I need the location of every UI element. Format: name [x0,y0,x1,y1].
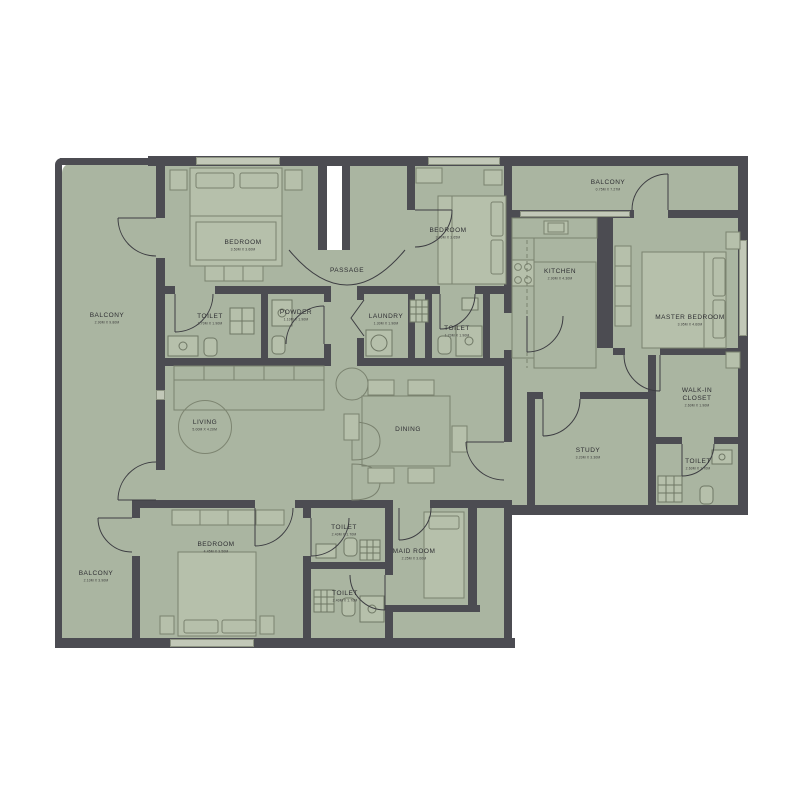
room-dimension: 2.90M X 4.30M [548,277,573,280]
room-label-toilet-2: TOILET1.70M X 1.90M [431,325,482,341]
room-label-living: LIVING5.00M X 4.20M [178,400,232,454]
room-name: TOILET [685,458,711,466]
room-dimension: 1.70M X 1.90M [445,334,470,337]
room-name: TOILET [444,325,470,333]
room-label-maid-room: MAID ROOM2.25M X 3.00M [388,548,439,564]
room-name: TOILET [332,590,358,598]
room-name: POWDER [280,309,312,317]
room-dimension: 1.70M X 1.90M [198,322,223,325]
room-dimension: 2.60M X 1.70M [686,467,711,470]
room-label-toilet-master: TOILET2.60M X 1.70M [672,458,723,474]
room-dimension: 2.10M X 3.90M [84,579,109,582]
room-label-balcony-left: BALCONY2.90M X 9.80M [81,312,132,328]
room-name: BALCONY [591,179,626,187]
room-label-balcony-top: BALCONY0.75M X 7.27M [582,179,633,195]
room-name: MAID ROOM [393,548,436,556]
room-name: BEDROOM [197,541,234,549]
room-dimension: 3.20M X 3.30M [576,456,601,459]
room-label-walk-in-closet: WALK-IN CLOSET2.60M X 1.90M [671,387,722,411]
room-name: BEDROOM [224,239,261,247]
room-dimension: 3.95M X 4.60M [678,323,703,326]
room-name: PASSAGE [330,267,364,275]
room-dimension: 5.00M X 4.20M [193,428,218,431]
room-label-balcony-bottom: BALCONY2.10M X 3.90M [70,570,121,586]
room-dimension: 4.45M X 3.50M [204,550,229,553]
room-name: BALCONY [90,312,125,320]
room-name: LIVING [193,419,217,427]
room-dimension: 2.60M X 1.90M [685,404,710,407]
room-label-toilet-3: TOILET2.40M X 1.70M [318,524,369,540]
room-label-bedroom-3: BEDROOM4.45M X 3.50M [190,541,241,557]
room-label-dining: DINING [395,426,421,434]
room-label-kitchen: KITCHEN2.90M X 4.30M [534,268,585,284]
room-dimension: 2.90M X 9.80M [95,321,120,324]
room-label-bedroom-1: BEDROOM3.50M X 3.60M [217,239,268,255]
room-name: BEDROOM [429,227,466,235]
room-dimension: 1.10M X 1.90M [284,318,309,321]
room-name: KITCHEN [544,268,576,276]
room-dimension: 2.25M X 3.00M [402,557,427,560]
room-label-toilet-1: TOILET1.70M X 1.90M [184,313,235,329]
room-label-master-bedroom: MASTER BEDROOM3.95M X 4.60M [655,314,724,330]
room-dimension: 1.30M X 1.90M [374,322,399,325]
room-dimension: 2.40M X 1.70M [333,599,358,602]
room-label-powder: POWDER1.10M X 1.90M [270,309,321,325]
room-name: TOILET [331,524,357,532]
room-name: WALK-IN CLOSET [674,387,720,403]
room-name: MASTER BEDROOM [655,314,724,322]
room-label-passage: PASSAGE [330,267,364,275]
floor-plan: BEDROOM3.50M X 3.60MBEDROOM3.00M X 3.65M… [0,0,800,800]
room-label-study: STUDY3.20M X 3.30M [562,447,613,463]
labels-layer: BEDROOM3.50M X 3.60MBEDROOM3.00M X 3.65M… [0,0,800,800]
room-dimension: 3.50M X 3.60M [231,248,256,251]
room-name: TOILET [197,313,223,321]
room-name: DINING [395,426,421,434]
room-name: BALCONY [79,570,114,578]
room-label-toilet-4: TOILET2.40M X 1.70M [319,590,370,606]
room-dimension: 0.75M X 7.27M [596,188,621,191]
room-dimension: 3.00M X 3.65M [436,236,461,239]
room-label-bedroom-2: BEDROOM3.00M X 3.65M [422,227,473,243]
room-name: STUDY [576,447,601,455]
room-label-laundry: LAUNDRY1.30M X 1.90M [360,313,411,329]
room-name: LAUNDRY [369,313,403,321]
room-dimension: 2.40M X 1.70M [332,533,357,536]
